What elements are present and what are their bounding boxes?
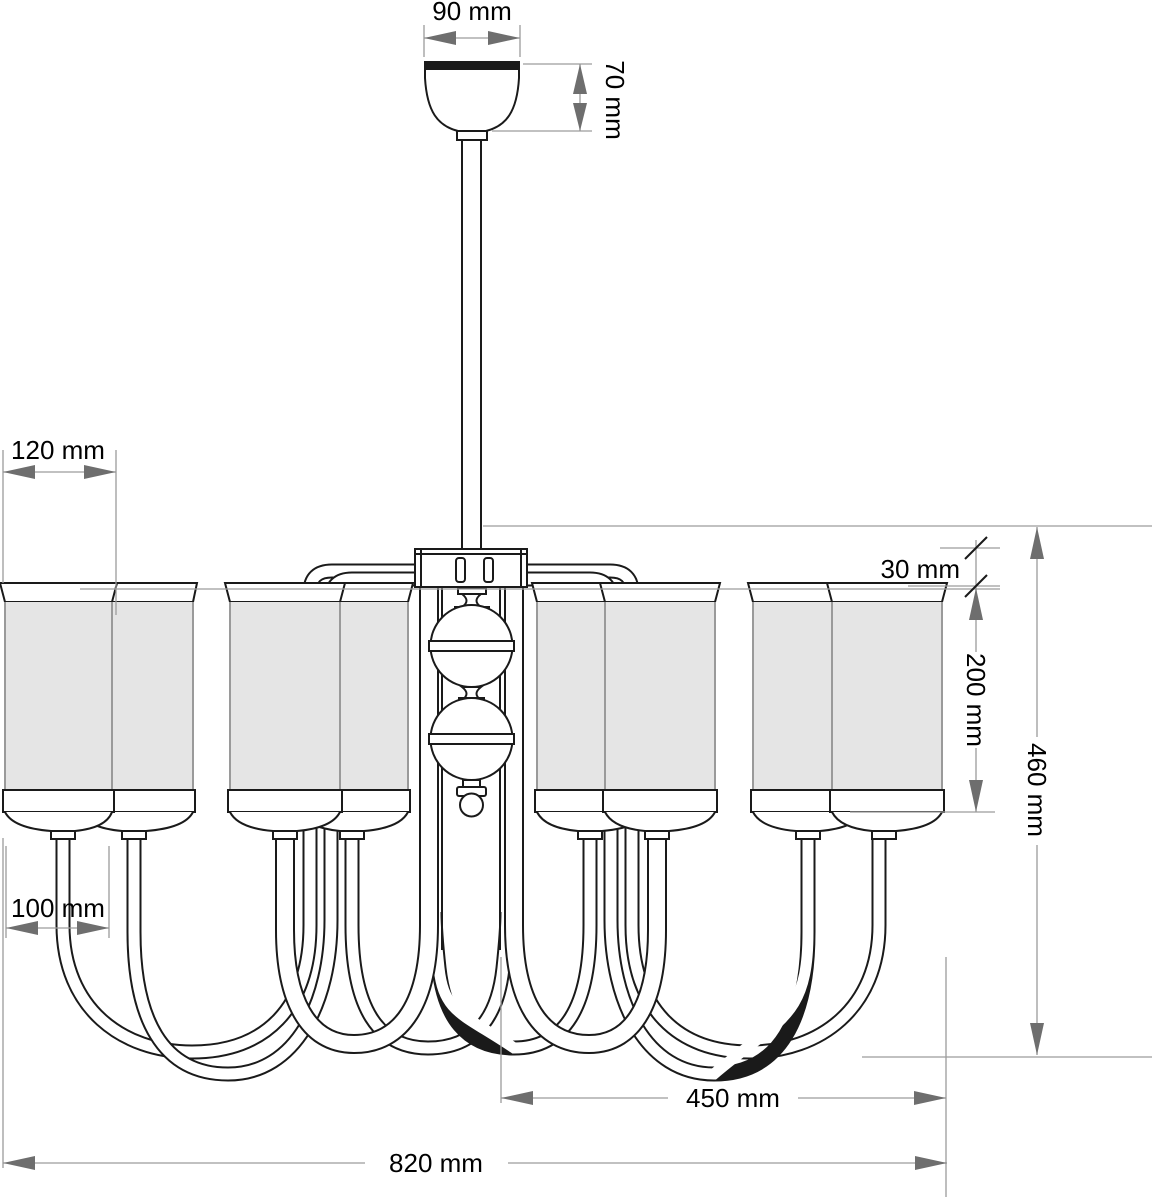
shade [600, 583, 720, 839]
dim-label-inner-span: 450 mm [686, 1083, 780, 1113]
chandelier-dimension-drawing: 90 mm 70 mm 120 mm 30 mm [0, 0, 1157, 1200]
dim-label-total-width: 820 mm [389, 1148, 483, 1178]
dim-label-canopy-height: 70 mm [600, 60, 630, 139]
dim-label-arm-offset: 100 mm [11, 893, 105, 923]
dim-canopy-width: 90 mm [424, 0, 520, 57]
hub-plate [415, 549, 527, 587]
ceiling-canopy [424, 61, 520, 140]
dim-label-rim-offset: 30 mm [881, 554, 960, 584]
finial-ball [460, 794, 483, 817]
centre-column [429, 587, 514, 950]
shade [827, 583, 947, 839]
dim-body-height: 460 mm [1022, 527, 1052, 1055]
dim-label-shade-diameter: 120 mm [11, 435, 105, 465]
technical-drawing-canvas: 90 mm 70 mm 120 mm 30 mm [0, 0, 1157, 1200]
dim-label-canopy-width: 90 mm [432, 0, 511, 26]
dim-label-body-height: 460 mm [1022, 743, 1052, 837]
dim-label-shade-height: 200 mm [961, 653, 991, 747]
canopy-plate [424, 61, 520, 69]
suspension-rod [462, 140, 481, 552]
shade [0, 583, 117, 839]
shade [225, 583, 345, 839]
